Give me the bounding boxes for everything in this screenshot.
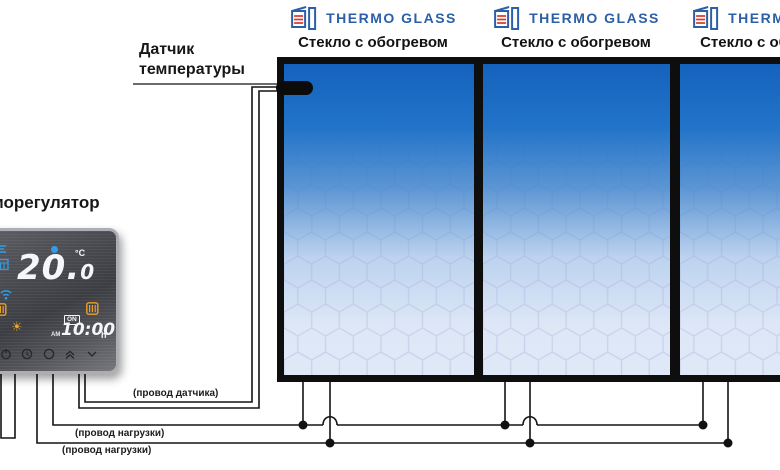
junction-dot [299,421,308,430]
time-reading: 10:00 [61,320,115,340]
clock-icon[interactable] [21,348,33,360]
glass-gradient [680,64,780,375]
junction-dot [326,439,335,448]
junction-dot [724,439,733,448]
glass-gradient [284,64,474,375]
calendar-icon [0,258,9,270]
thermostat-device: 20.0 °C ☀ ON AM 10:00 h [0,228,119,374]
heated-glass-pane [284,64,474,375]
glass-assembly-frame [277,57,780,382]
touch-key-row [0,348,116,364]
circle-icon[interactable] [43,348,55,360]
heating-icon [0,303,7,316]
am-label: AM [51,332,60,338]
power-loop-wire [1,373,15,438]
glass-gradient [483,64,670,375]
junction-dot [501,421,510,430]
junction-dot [699,421,708,430]
signal-icon [0,244,8,253]
wifi-icon [0,289,13,300]
sun-icon: ☀ [11,319,23,335]
chevron-down-icon[interactable] [86,348,98,360]
heated-glass-pane [483,64,670,375]
diagram-stage: THERMO GLASS Стекло с обогревом THERMO G… [0,0,780,470]
heated-glass-pane [680,64,780,375]
temperature-sensor [276,81,313,95]
junction-dot [526,439,535,448]
chevron-up-icon[interactable] [64,348,76,360]
heating-icon [86,302,99,315]
power-icon[interactable] [0,348,12,360]
time-unit: h [101,330,107,340]
temperature-unit: °C [75,248,85,258]
